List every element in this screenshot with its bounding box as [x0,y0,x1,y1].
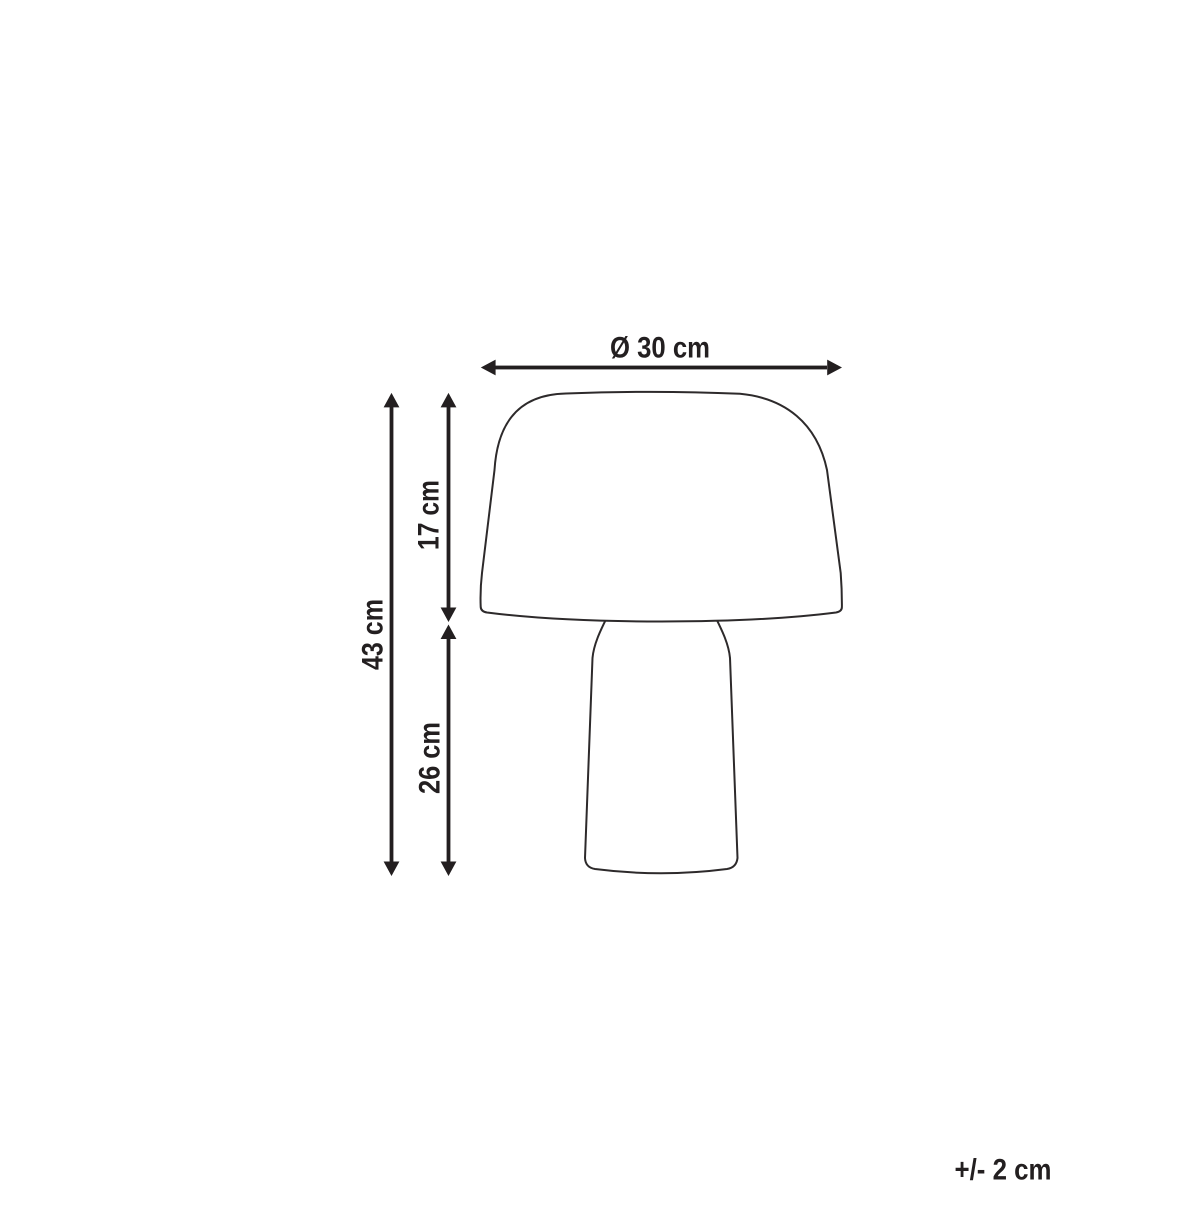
svg-text:26 cm: 26 cm [414,722,447,794]
svg-text:+/- 2 cm: +/- 2 cm [955,1154,1052,1187]
svg-text:43 cm: 43 cm [357,599,390,670]
svg-text:Ø 30 cm: Ø 30 cm [610,332,710,365]
svg-text:17 cm: 17 cm [413,480,446,550]
